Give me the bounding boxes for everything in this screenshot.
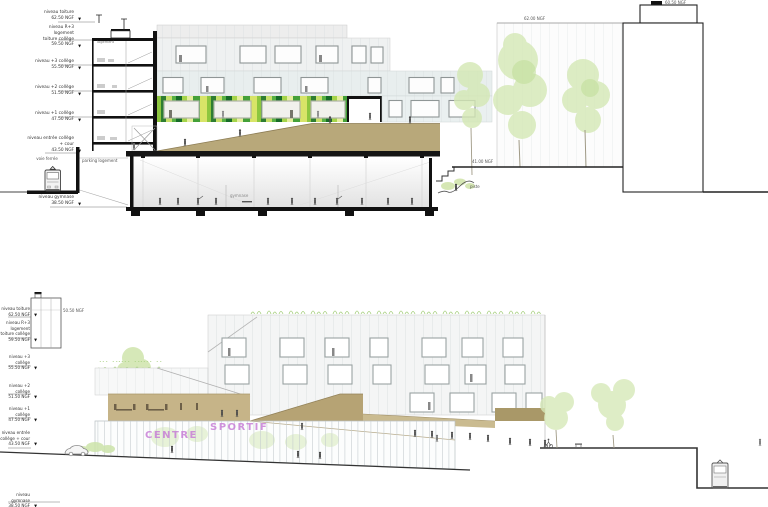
level-marker-icon: ▼ — [34, 394, 37, 399]
level-marker-icon: ▼ — [34, 337, 37, 342]
level-label: niveau toiture 62.50 NGF▼ — [4, 10, 74, 22]
furniture-sketches — [97, 58, 117, 140]
voie-ferree-label: voie ferrée — [30, 156, 64, 161]
level-label: niveau gymnase 38.50 NGF▼ — [0, 492, 30, 507]
level-label: niveau entrée collège + cour 43.50 NGF▼ — [0, 430, 30, 447]
gymnase-label: gymnase — [230, 193, 248, 198]
level-label: niveau gymnase 38.50 NGF▼ — [4, 195, 74, 207]
gymnasium — [126, 151, 440, 216]
tram-icon — [45, 167, 61, 192]
level-marker-icon: ▼ — [34, 417, 37, 422]
ngf-4100-label: 41.00 NGF — [472, 159, 493, 164]
level-label: niveau +2 collège 51.50 NGF▼ — [4, 85, 74, 97]
trees — [540, 379, 635, 448]
section-drawing — [0, 1, 768, 216]
footings — [131, 211, 434, 216]
level-label: niveau toiture 62.50 NGF▼ — [0, 306, 30, 317]
section-cut-opening — [347, 96, 382, 122]
left-building-section — [92, 15, 157, 151]
piste-label: piste — [470, 184, 480, 189]
level-marker-icon: ▼ — [78, 43, 81, 48]
green-facade-band — [157, 96, 347, 122]
sportif-signage: SPORTIF — [210, 422, 268, 433]
level-label: niveau R+3 logement toiture collège 59.5… — [4, 25, 74, 48]
bench-icon — [575, 444, 582, 448]
ngf-6050-label: 60.50 NGF — [665, 0, 686, 5]
level-label: niveau +1 collège 47.50 NGF▼ — [0, 406, 30, 423]
centre-signage: CENTRE — [145, 430, 198, 441]
level-label: niveau +1 collège 47.50 NGF▼ — [4, 111, 74, 123]
elevation-drawing — [0, 292, 768, 502]
level-marker-icon: ▼ — [34, 365, 37, 370]
level-label: niveau +3 collège 55.50 NGF▼ — [4, 59, 74, 71]
level-marker-icon: ▼ — [78, 117, 81, 122]
level-label: niveau +3 collège 55.50 NGF▼ — [0, 354, 30, 371]
drawing-graphics — [0, 0, 768, 507]
sports-centre-glass — [95, 421, 455, 469]
level-label: niveau R+3 logement toiture collège 59.5… — [0, 320, 30, 342]
parking-label: parking logement — [82, 158, 117, 163]
college-housing-facade — [157, 25, 492, 122]
level-marker-icon: ▼ — [78, 65, 81, 70]
level-marker-icon: ▼ — [34, 441, 37, 446]
ngf-6200-label: 62.00 NGF — [524, 16, 545, 21]
ngf-5050-label: 50.50 NGF — [63, 308, 84, 313]
logement-label: logement — [97, 40, 114, 44]
level-marker-icon: ▼ — [78, 148, 81, 153]
right-terrain — [436, 167, 623, 193]
architectural-drawing-sheet: niveau toiture 62.50 NGF▼ niveau R+3 log… — [0, 0, 768, 507]
level-label: niveau +2 collège 51.50 NGF▼ — [0, 383, 30, 400]
level-marker-icon: ▼ — [78, 91, 81, 96]
neighbor-building-outline — [623, 1, 768, 192]
level-marker-icon: ▼ — [78, 201, 81, 206]
tram-icon — [712, 460, 728, 488]
level-marker-icon: ▼ — [34, 503, 37, 507]
level-marker-icon: ▼ — [78, 16, 81, 21]
level-label: niveau entrée collège + cour 43.50 NGF▼ — [4, 136, 74, 153]
level-marker-icon: ▼ — [34, 312, 37, 317]
